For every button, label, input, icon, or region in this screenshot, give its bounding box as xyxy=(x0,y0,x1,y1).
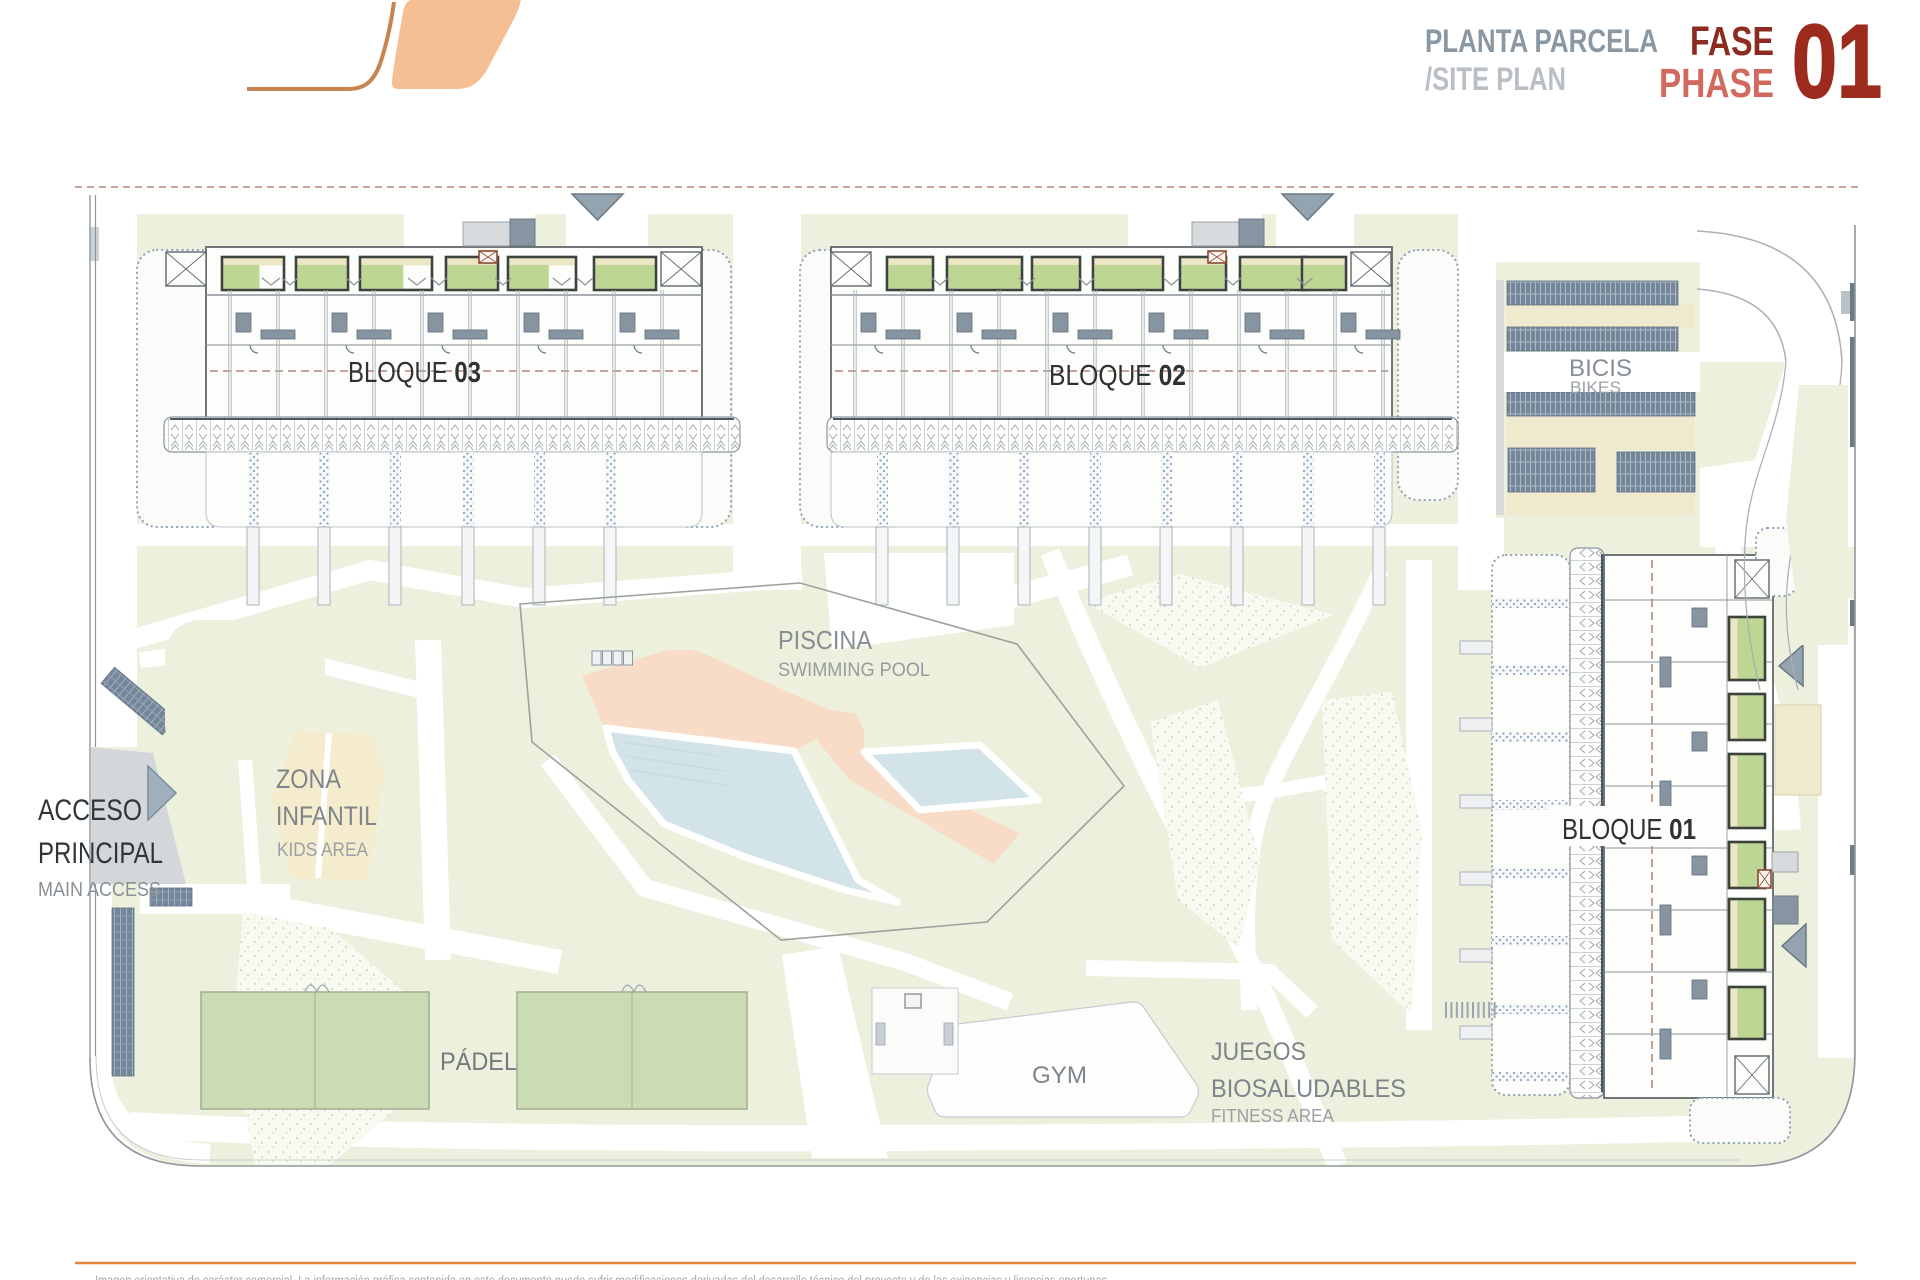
svg-text:PHASE: PHASE xyxy=(1659,60,1774,106)
svg-text:Imagen orientativa de carácter: Imagen orientativa de carácter comercial… xyxy=(95,1273,1110,1280)
svg-text:GYM: GYM xyxy=(1032,1062,1087,1089)
svg-text:MAIN ACCESS: MAIN ACCESS xyxy=(38,879,161,901)
svg-text:PISCINA: PISCINA xyxy=(778,625,873,655)
svg-text:PÁDEL: PÁDEL xyxy=(440,1047,517,1076)
svg-text:01: 01 xyxy=(1792,4,1882,120)
svg-text:INFANTIL: INFANTIL xyxy=(276,801,377,831)
svg-text:FASE: FASE xyxy=(1690,18,1774,64)
svg-text:JUEGOS: JUEGOS xyxy=(1211,1038,1306,1066)
svg-text:PLANTA PARCELA: PLANTA PARCELA xyxy=(1425,23,1658,59)
svg-text:PRINCIPAL: PRINCIPAL xyxy=(38,837,163,870)
svg-text:BIKES: BIKES xyxy=(1570,378,1621,397)
svg-text:BIOSALUDABLES: BIOSALUDABLES xyxy=(1211,1075,1406,1103)
svg-text:BLOQUE 02: BLOQUE 02 xyxy=(1049,360,1186,392)
svg-text:FITNESS AREA: FITNESS AREA xyxy=(1211,1106,1334,1126)
svg-text:SWIMMING POOL: SWIMMING POOL xyxy=(778,660,930,681)
svg-text:BLOQUE 03: BLOQUE 03 xyxy=(348,357,481,389)
svg-text:BLOQUE 01: BLOQUE 01 xyxy=(1562,814,1696,846)
svg-text:/SITE PLAN: /SITE PLAN xyxy=(1425,61,1566,97)
svg-text:KIDS AREA: KIDS AREA xyxy=(277,840,368,861)
svg-text:ZONA: ZONA xyxy=(276,764,341,794)
